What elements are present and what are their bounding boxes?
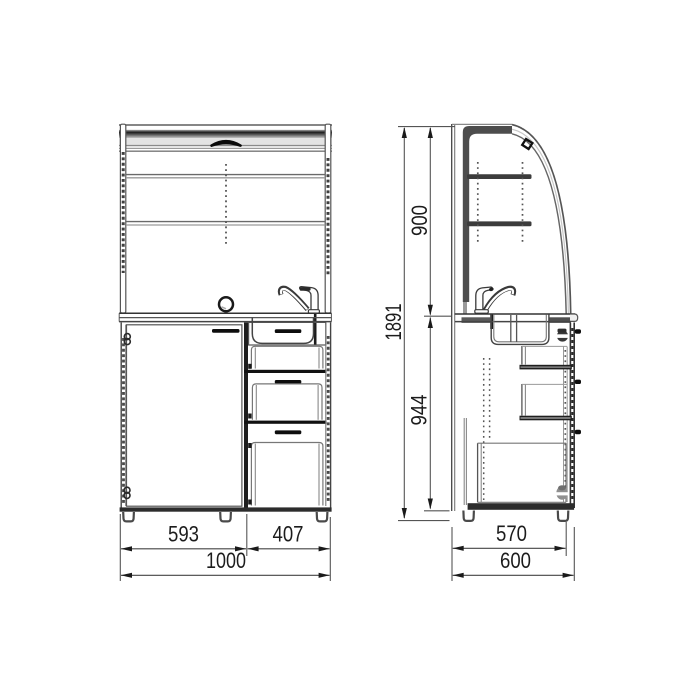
svg-text:944: 944 [407, 395, 432, 426]
svg-text:570: 570 [496, 521, 527, 546]
svg-text:407: 407 [273, 522, 304, 547]
svg-text:600: 600 [500, 548, 531, 573]
svg-text:900: 900 [407, 205, 432, 236]
svg-text:593: 593 [168, 522, 199, 547]
svg-text:1000: 1000 [206, 548, 246, 573]
svg-text:1891: 1891 [381, 304, 406, 341]
